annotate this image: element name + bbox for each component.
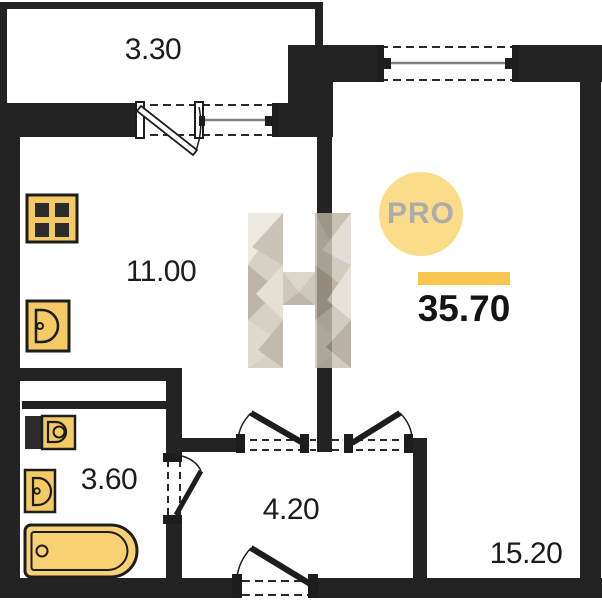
door-post [232, 574, 242, 598]
area-label-hallway: 4.20 [241, 493, 341, 527]
floor-plan: 3.30 11.00 3.60 4.20 15.20 PRO 35.70 [0, 0, 602, 600]
wall [580, 45, 601, 598]
window-post [505, 58, 512, 69]
area-label-kitchen-living: 11.00 [111, 255, 211, 289]
door-swing-arc [182, 456, 201, 471]
door-post [344, 434, 353, 453]
window-post [512, 45, 519, 82]
wall [182, 438, 238, 452]
door-leaf [137, 106, 197, 155]
door-post [163, 515, 182, 524]
wall [288, 45, 380, 82]
bathtub-icon [25, 525, 137, 577]
wall [0, 103, 143, 137]
wall [166, 520, 182, 578]
door-post [236, 434, 245, 453]
window-icon [377, 45, 519, 82]
balcony-window-icon [199, 103, 279, 137]
room-door [332, 413, 413, 453]
door-swing-arc [237, 548, 251, 577]
toilet-icon [25, 416, 75, 449]
wall [0, 2, 7, 107]
area-label-balcony: 3.30 [103, 33, 203, 67]
wall [0, 103, 20, 598]
washbasin-icon [25, 470, 55, 512]
area-label-living-room: 15.20 [476, 537, 576, 571]
wall [166, 368, 182, 456]
wall [413, 438, 427, 578]
total-area-value: 35.70 [404, 288, 524, 330]
balcony-door [136, 102, 272, 155]
window-post [384, 58, 391, 69]
door-leaf [251, 413, 303, 443]
wall [288, 82, 333, 104]
door-leaf [251, 548, 312, 585]
bathroom-door [163, 453, 201, 524]
wall [0, 2, 323, 9]
area-label-bathroom: 3.60 [59, 463, 159, 497]
wall [0, 578, 235, 598]
window-post [377, 45, 384, 82]
pro-badge: PRO [379, 172, 463, 256]
entrance-door [232, 548, 318, 598]
pro-badge-label: PRO [387, 197, 455, 231]
window-post [199, 116, 205, 126]
accent-bar [418, 272, 510, 285]
door-leaf [352, 413, 400, 443]
window-post [272, 103, 279, 137]
wall [315, 2, 323, 47]
kitchen-door [236, 413, 316, 453]
stove-icon [27, 195, 77, 242]
kitchen-sink-icon [27, 301, 69, 351]
wall [0, 368, 182, 381]
h-logo-watermark [248, 213, 351, 368]
wall [22, 401, 168, 409]
door-post [163, 453, 182, 462]
wall [316, 578, 602, 598]
window-post [265, 116, 273, 126]
